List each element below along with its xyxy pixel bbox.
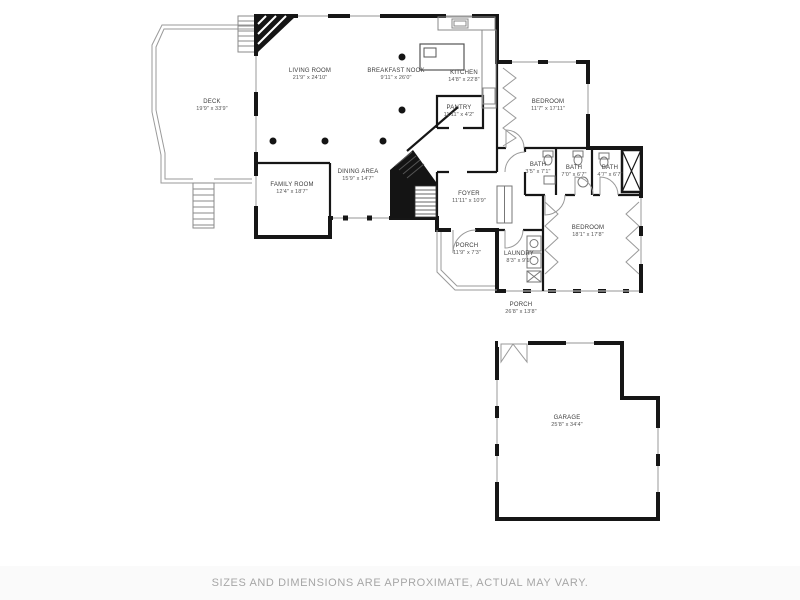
- stairwell: [390, 150, 436, 218]
- corner-stair-hatch: [258, 16, 296, 52]
- closet-xbox: [622, 150, 641, 192]
- interior-walls: [256, 62, 641, 291]
- foyer-closet: [497, 186, 512, 223]
- deck-outline: [152, 25, 258, 183]
- laundry-fixtures: [527, 236, 541, 282]
- disclaimer-text: SIZES AND DIMENSIONS ARE APPROXIMATE, AC…: [212, 577, 589, 589]
- bath-fixtures: [543, 151, 609, 187]
- deck-stairs-bottom: [193, 183, 214, 228]
- closet-chevrons: [503, 68, 639, 274]
- small-porch-outline: [437, 230, 497, 290]
- kitchen-fixtures: [420, 17, 496, 108]
- garage: [493, 339, 662, 519]
- floor-plan-drawing: [0, 0, 800, 600]
- footer-band: SIZES AND DIMENSIONS ARE APPROXIMATE, AC…: [0, 566, 800, 600]
- floor-plan-page: DECK 19'9" x 33'9" LIVING ROOM 21'9" x 2…: [0, 0, 800, 600]
- windows: [252, 12, 645, 295]
- columns: [270, 54, 406, 145]
